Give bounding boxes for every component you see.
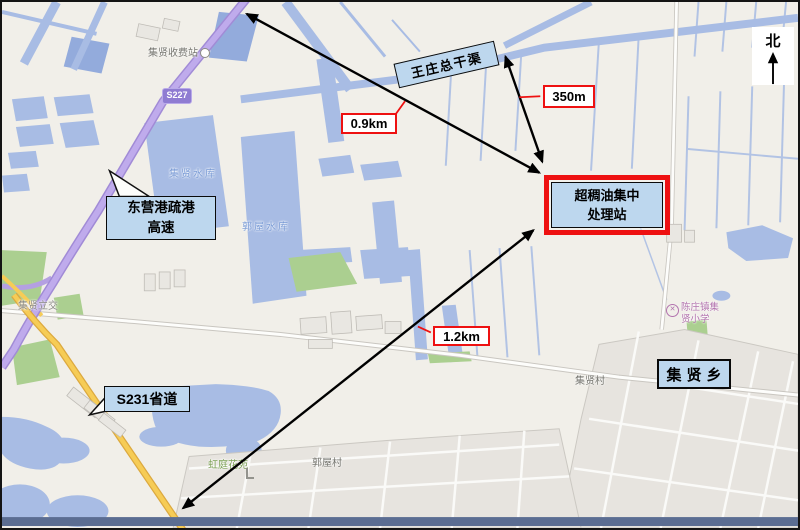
distance-label-350m: 350m: [543, 85, 595, 108]
north-arrow-icon: [763, 51, 783, 85]
facility-line1: 超稠油集中: [574, 186, 639, 206]
s231-annotation-label: S231省道: [104, 386, 190, 412]
north-indicator: 北: [752, 27, 794, 85]
distance-arrow-09km: [247, 14, 540, 173]
north-text: 北: [765, 30, 780, 51]
town-annotation-label: 集贤乡: [657, 359, 731, 389]
facility-label: 超稠油集中 处理站: [551, 182, 663, 228]
expressway-annotation-label: 东营港疏港 高速: [106, 196, 216, 240]
connector-12km: [418, 327, 431, 333]
facility-line2: 处理站: [587, 205, 626, 225]
facility-highlight-box: 超稠油集中 处理站: [544, 175, 670, 235]
expressway-line1: 东营港疏港: [127, 198, 195, 218]
distance-arrow-12km: [183, 230, 533, 508]
distance-arrow-350m: [505, 57, 542, 162]
distance-label-09km: 0.9km: [341, 113, 397, 134]
expressway-callout-pointer: [109, 171, 149, 197]
connector-350m: [519, 96, 540, 97]
annotated-site-map: 集贤收费站 S227 集贤水库 郭屋水库 集贤立交 虹庭花苑 郭屋村 集贤村 ✕…: [0, 0, 800, 530]
expressway-line2: 高速: [148, 218, 175, 238]
distance-label-12km: 1.2km: [433, 326, 490, 346]
